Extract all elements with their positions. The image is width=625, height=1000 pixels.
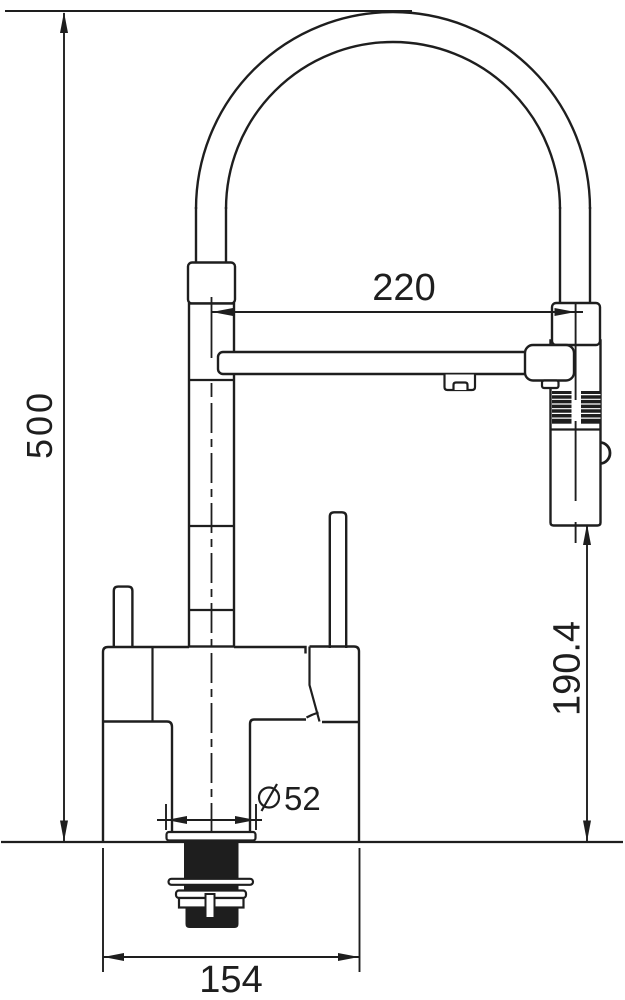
svg-text:154: 154	[199, 959, 262, 1000]
svg-text:52: 52	[284, 780, 321, 817]
svg-text:220: 220	[372, 267, 435, 309]
svg-text:500: 500	[19, 390, 60, 459]
svg-text:190.4: 190.4	[547, 621, 589, 716]
